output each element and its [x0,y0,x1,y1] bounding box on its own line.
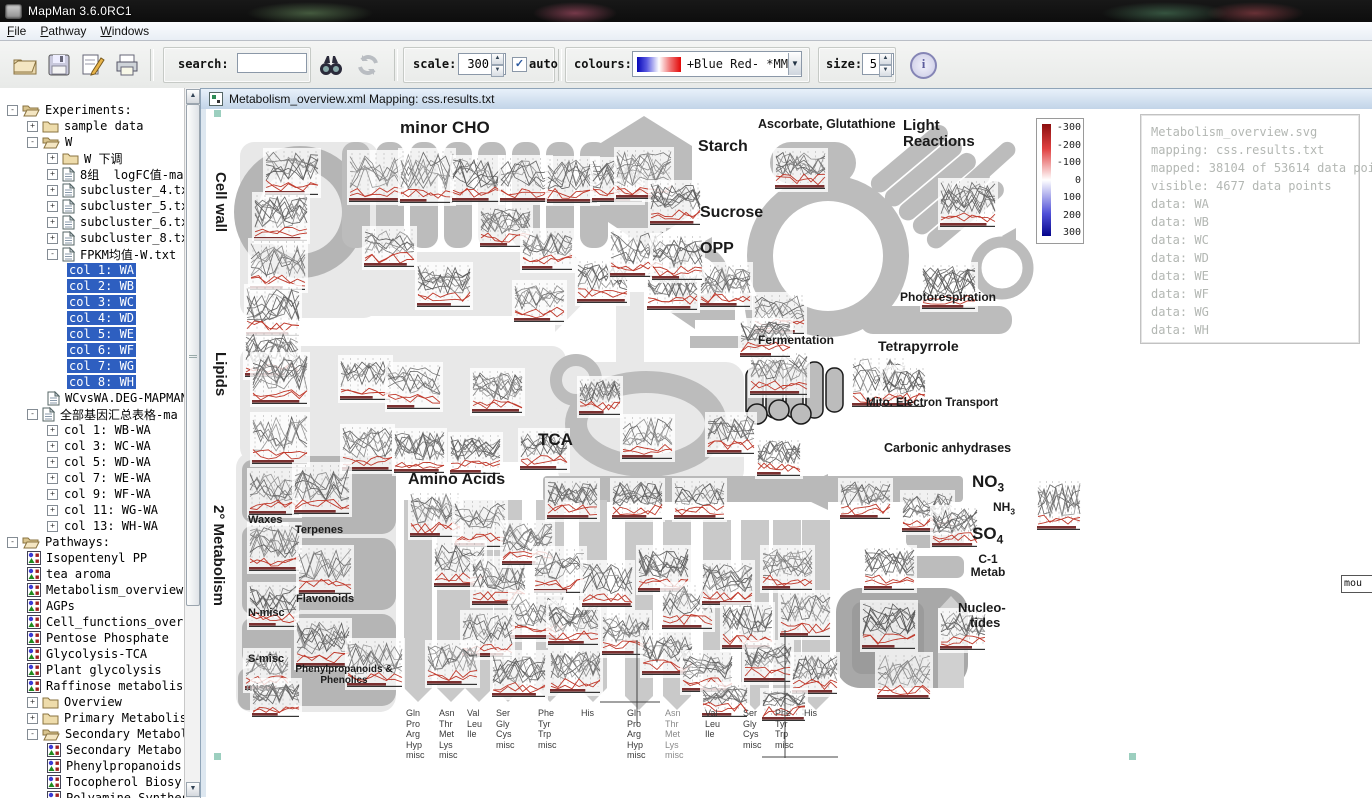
label-lipids: Lipids [212,352,229,396]
label-opp: OPP [700,240,734,258]
tree-item[interactable]: +col 3: WC-WA [0,438,184,454]
tree-item[interactable]: col 2: WB [0,278,184,294]
tree-item-label[interactable]: Polyamine Synthes [64,791,191,798]
tree-item-label[interactable]: subcluster_5.txt [78,199,198,213]
info-line: mapped: 38104 of 53614 data points [1151,159,1359,177]
folder-icon [62,151,79,165]
aa-label-synthesis-5: His [581,708,613,719]
tree-item-label[interactable]: col 3: WC-WA [62,439,153,453]
expression-profile-thumbnail[interactable] [490,650,548,700]
tree-item-label[interactable]: Plant glycolysis [44,663,164,677]
tree-item-label[interactable]: Pathways: [43,535,112,549]
folder-icon [42,119,59,133]
tree-item-label[interactable]: col 5: WE [67,327,136,341]
expand-icon[interactable]: + [27,121,38,132]
tree-item[interactable]: Cell_functions_over [0,614,184,630]
tree-item[interactable]: -Experiments: [0,102,184,118]
expression-profile-thumbnail[interactable] [580,560,635,610]
find-binoculars-button[interactable] [318,52,344,78]
tree-item-label[interactable]: sample data [62,119,145,133]
label-starch: Starch [698,138,748,156]
legend-tick: 300 [1054,227,1081,238]
tree-item[interactable]: +sample data [0,118,184,134]
info-line: visible: 4677 data points [1151,177,1359,195]
label-terpenes: Terpenes [295,524,343,536]
label-carbonic-anhydrases: Carbonic anhydrases [884,441,1011,455]
expression-profile-thumbnail[interactable] [838,478,893,522]
tree-item[interactable]: +col 1: WB-WA [0,422,184,438]
pathway-icon [27,679,41,693]
info-line: data: WA [1151,195,1359,213]
expression-profile-thumbnail[interactable] [425,640,480,688]
tree-item[interactable]: Tocopherol Biosy [0,774,184,790]
colour-scale-swatch [637,57,681,72]
expression-profile-thumbnail[interactable] [498,155,553,205]
tree-item-label[interactable]: subcluster_8.txt [78,231,198,245]
label-flavonoids: Flavonoids [296,593,354,605]
folder-icon [62,151,79,165]
tree-item[interactable]: +Overview [0,694,184,710]
label-amino-acids: Amino Acids [408,471,505,489]
tree-item[interactable]: AGPs [0,598,184,614]
titlebar: MapMan 3.6.0RC1 [0,0,1372,22]
collapse-icon[interactable]: - [27,409,38,420]
colour-scale-legend: -300-200-1000100200300 [1036,118,1084,244]
scroll-down-icon[interactable]: ▼ [186,782,200,797]
file-icon [62,247,75,262]
pathway-doc-icon [209,92,223,106]
doc-title: Metabolism_overview.xml Mapping: css.res… [229,92,494,106]
tree-item[interactable]: WCvsWA.DEG-MAPMAN.t [0,390,184,406]
tree-item[interactable]: Isopentenyl PP [0,550,184,566]
info-button[interactable] [910,52,937,79]
file-icon [62,167,75,182]
open-file-button[interactable] [12,52,38,78]
expression-profile-thumbnail[interactable] [250,352,310,407]
tree-item[interactable]: -W [0,134,184,150]
tree-item-label[interactable]: Phenylpropanoids [64,759,184,773]
folder-icon [42,119,59,133]
legend-tick: -200 [1054,140,1081,151]
label-phenylpropanoids: Phenylpropanoids & Phenolics [288,664,400,686]
expand-icon[interactable]: + [47,169,58,180]
tree-item[interactable]: +col 13: WH-WA [0,518,184,534]
tree-item-label[interactable]: col 7: WE-WA [62,471,153,485]
tree-item[interactable]: +col 5: WD-WA [0,454,184,470]
file-icon [62,167,75,182]
file-icon [62,247,75,262]
label-n-misc: N-misc [248,607,285,619]
scale-spinner-arrows[interactable] [491,53,504,75]
expand-icon[interactable]: + [27,713,38,724]
aa-label-synthesis-3: SerGlyCysmisc [496,708,528,750]
aa-label-synthesis-2: ValLeuIle [467,708,499,740]
folder-open-icon [42,727,60,741]
tree-item[interactable]: +col 11: WG-WA [0,502,184,518]
tree-item-label[interactable]: AGPs [44,599,77,613]
info-line: data: WG [1151,303,1359,321]
tree-item-label[interactable]: col 9: WF-WA [62,487,153,501]
aa-label-degradation-4: PheTyrTrpmisc [775,708,807,750]
tree-item[interactable]: col 4: WD [0,310,184,326]
expression-profile-thumbnail[interactable] [296,545,354,597]
size-spinner-arrows[interactable] [879,53,892,75]
chevron-down-icon[interactable] [788,53,801,75]
expand-icon[interactable]: + [47,521,58,532]
tree-item-label[interactable]: col 1: WB-WA [62,423,153,437]
tree-item[interactable]: +subcluster_8.txt [0,230,184,246]
file-icon [62,215,75,230]
tree-item-label[interactable]: subcluster_6.txt [78,215,198,229]
tree-item-label[interactable]: Metabolism_overview [44,583,185,597]
pathway-icon [47,791,61,798]
expression-profile-thumbnail[interactable] [362,226,417,270]
doc-titlebar[interactable]: Metabolism_overview.xml Mapping: css.res… [201,89,1372,110]
tree-item[interactable]: +subcluster_5.txt [0,198,184,214]
pathway-icon [27,663,41,677]
tree-item-label[interactable]: col 6: WF [67,343,136,357]
tree-item-label[interactable]: Secondary Metabo [64,743,184,757]
refresh-button[interactable] [355,52,381,78]
tree-item-label[interactable]: W 下调 [82,150,124,167]
expand-icon[interactable]: + [47,425,58,436]
tree-item[interactable]: Secondary Metabo [0,742,184,758]
tree-item-label[interactable]: col 13: WH-WA [62,519,160,533]
file-icon [62,199,75,214]
pathway-icon [47,775,61,789]
expression-profile-thumbnail[interactable] [778,590,833,640]
menubar: FilePathwayWindows [0,22,1372,41]
tree-item[interactable]: +col 9: WF-WA [0,486,184,502]
scroll-up-icon[interactable]: ▲ [186,89,200,104]
expand-icon[interactable]: + [47,505,58,516]
label-minor-cho: minor CHO [400,118,490,138]
edit-button[interactable] [80,52,106,78]
tree-item-label[interactable]: Experiments: [43,103,134,117]
expression-profile-thumbnail[interactable] [742,640,794,685]
tree-item-label[interactable]: col 8: WH [67,375,136,389]
pathway-icon [27,679,41,693]
expand-icon[interactable]: + [47,217,58,228]
tree-item-label[interactable]: W [63,135,74,149]
pathway-icon [27,583,41,597]
menu-item-windows[interactable]: Windows [93,23,156,39]
tree-scrollbar[interactable]: ▲ ▼ [184,88,200,798]
collapse-icon[interactable]: - [47,249,58,260]
collapse-icon[interactable]: - [27,137,38,148]
expression-profile-thumbnail[interactable] [292,462,352,517]
expression-profile-thumbnail[interactable] [250,412,310,467]
scale-label: scale: [413,57,456,71]
tree-item[interactable]: -Pathways: [0,534,184,550]
experiment-tree-panel: -Experiments:+sample data-W+W 下调+8组 logF… [0,88,200,798]
tree-item[interactable]: Polyamine Synthes [0,790,184,798]
tree-item-label[interactable]: col 2: WB [67,279,136,293]
info-line: mapping: css.results.txt [1151,141,1359,159]
pathway-icon [27,631,41,645]
expression-profile-thumbnail[interactable] [650,233,705,283]
tree-item[interactable]: col 8: WH [0,374,184,390]
expression-profile-thumbnail[interactable] [385,362,443,412]
expand-icon[interactable]: + [47,457,58,468]
pathway-icon [27,647,41,661]
pathway-icon [27,615,41,629]
tree-item-label[interactable]: 全部基因汇总表格-ma [58,406,180,423]
tree-item[interactable]: Plant glycolysis [0,662,184,678]
label-cell-wall: Cell wall [212,172,229,232]
label-waxes: Waxes [248,514,282,526]
aa-label-degradation-0: GlnProArgHypmisc [627,708,659,761]
expression-profile-thumbnail[interactable] [247,582,299,630]
aa-label-degradation-2: ValLeuIle [705,708,737,740]
file-icon [62,183,75,198]
expand-icon[interactable]: + [47,185,58,196]
colours-value: +Blue Red- *MM [687,57,788,71]
file-icon [62,231,75,246]
colours-dropdown[interactable]: +Blue Red- *MM [632,51,802,77]
aa-label-degradation-5: His [804,708,836,719]
label-c1-metab: C-1Metab [966,553,1010,579]
tree-item[interactable]: +W 下调 [0,150,184,166]
expression-profile-thumbnail[interactable] [773,148,828,192]
tree-item[interactable]: col 7: WG [0,358,184,374]
pathway-icon [47,759,61,773]
aa-label-synthesis-4: PheTyrTrpmisc [538,708,570,750]
folder-icon [42,711,59,725]
file-icon [42,407,55,422]
tree-item[interactable]: col 5: WE [0,326,184,342]
expression-profile-thumbnail[interactable] [294,618,352,670]
tree-item-label[interactable]: tea aroma [44,567,113,581]
label-photorespiration: Photorespiration [900,290,996,304]
expression-profile-thumbnail[interactable] [700,560,755,608]
tree-item-label[interactable]: Cell_functions_over [44,615,185,629]
menu-item-file[interactable]: File [0,23,33,39]
tree-item[interactable]: col 3: WC [0,294,184,310]
label-fermentation: Fermentation [758,333,834,347]
expression-profile-thumbnail[interactable] [755,437,803,479]
selection-handle[interactable] [1129,753,1136,760]
expression-profile-thumbnail[interactable] [577,376,623,418]
app-icon [5,4,22,19]
legend-tick: -300 [1054,122,1081,133]
tree-item[interactable]: +subcluster_6.txt [0,214,184,230]
file-icon [42,407,55,422]
tree-item-label[interactable]: col 1: WA [67,263,136,277]
folder-open-icon [42,727,60,741]
tree-item-label[interactable]: WCvsWA.DEG-MAPMAN.t [63,391,200,405]
save-button[interactable] [46,52,72,78]
tree-item[interactable]: Metabolism_overview [0,582,184,598]
folder-icon [42,711,59,725]
expression-profile-thumbnail[interactable] [860,600,918,652]
folder-open-icon [22,103,40,117]
toolbar: search: scale: 300 auto colours: +Blue R… [0,41,1372,89]
pathway-icon [27,551,41,565]
expression-profile-thumbnail[interactable] [532,546,587,596]
expression-profile-thumbnail[interactable] [705,412,757,457]
pathway-icon [27,567,41,581]
expression-profile-thumbnail[interactable] [862,545,917,593]
tree-item-label[interactable]: col 3: WC [67,295,136,309]
search-input[interactable] [237,53,307,73]
expression-profile-thumbnail[interactable] [263,148,321,198]
collapse-icon[interactable]: - [7,105,18,116]
tree-item[interactable]: -FPKM均值-W.txt [0,246,184,262]
expression-profile-thumbnail[interactable] [512,280,567,325]
pathway-icon [47,759,61,773]
tree-item-label[interactable]: Isopentenyl PP [44,551,149,565]
toolbar-separator [394,49,398,81]
mapping-info-panel: Metabolism_overview.svgmapping: css.resu… [1140,114,1360,344]
collapse-icon[interactable]: - [27,729,38,740]
aa-label-synthesis-0: GlnProArgHypmisc [406,708,438,761]
pathway-icon [27,567,41,581]
aa-label-degradation-3: SerGlyCysmisc [743,708,775,750]
expression-profile-thumbnail[interactable] [338,355,393,403]
file-icon [62,231,75,246]
expression-profile-thumbnail[interactable] [415,262,473,310]
tree-item-label[interactable]: Glycolysis-TCA [44,647,149,661]
expression-profile-thumbnail[interactable] [450,155,505,205]
tree-item-label[interactable]: subcluster_4.txt [78,183,198,197]
expand-icon[interactable]: + [47,153,58,164]
mouse-tooltip: mou [1341,575,1372,593]
legend-tick: 200 [1054,210,1081,221]
expand-icon[interactable]: + [47,473,58,484]
colours-label: colours: [574,57,632,71]
pathway-icon [47,775,61,789]
expression-profile-thumbnail[interactable] [392,428,447,476]
expand-icon[interactable]: + [47,489,58,500]
expression-profile-thumbnail[interactable] [252,192,310,244]
auto-checkbox[interactable] [512,57,527,72]
legend-ticks: -300-200-1000100200300 [1054,122,1081,238]
label-sucrose: Sucrose [700,204,763,222]
tree-item-label[interactable]: Secondary Metabolis [63,727,200,741]
legend-gradient-bar [1042,124,1051,236]
label-mito-electron-transport: Mito. Electron Transport [866,397,998,409]
info-line: data: WF [1151,285,1359,303]
label-tca: TCA [538,430,573,450]
label-sec-metabolism: 2° Metabolism [210,505,227,606]
expression-profile-thumbnail[interactable] [548,648,603,696]
label-tetrapyrrole: Tetrapyrrole [878,338,959,354]
app-title: MapMan 3.6.0RC1 [28,4,132,18]
expression-profile-thumbnail[interactable] [672,478,727,522]
pathway-icon [27,599,41,613]
tree-item[interactable]: col 6: WF [0,342,184,358]
expression-profile-thumbnail[interactable] [648,180,703,228]
folder-open-icon [22,103,40,117]
scrollbar-thumb[interactable] [186,104,200,606]
pathway-icon [47,791,61,798]
info-line: data: WB [1151,213,1359,231]
tree-item-label[interactable]: Tocopherol Biosy [64,775,184,789]
expression-profile-thumbnail[interactable] [938,178,998,230]
menu-item-pathway[interactable]: Pathway [33,23,93,39]
file-icon [47,391,60,406]
info-line: data: WH [1151,321,1359,339]
expression-profile-thumbnail[interactable] [698,262,753,310]
expression-profile-thumbnail[interactable] [620,414,675,462]
tree-item-label[interactable]: Primary Metabolism [62,711,196,725]
tree-item-label[interactable]: Pentose Phosphate [44,631,171,645]
search-label: search: [178,57,229,71]
label-ascorbate: Ascorbate, Glutathione [758,117,896,131]
tree-item-label[interactable]: Overview [62,695,124,709]
selection-handle[interactable] [214,110,221,117]
label-misc: misc [246,682,271,694]
tree-item-label[interactable]: 8组 logFC值-map [78,166,193,183]
pathway-icon [27,551,41,565]
tree-item-label[interactable]: FPKM均值-W.txt [78,246,178,263]
tree-item[interactable]: +subcluster_4.txt [0,182,184,198]
tree-item[interactable]: col 1: WA [0,262,184,278]
file-icon [62,215,75,230]
tree-item[interactable]: Glycolysis-TCA [0,646,184,662]
auto-label: auto [529,57,558,71]
expression-profile-thumbnail[interactable] [610,478,665,522]
selection-handle[interactable] [214,753,221,760]
tree-item-label[interactable]: col 5: WD-WA [62,455,153,469]
expression-profile-thumbnail[interactable] [545,478,600,522]
expression-profile-thumbnail[interactable] [760,545,815,593]
collapse-icon[interactable]: - [7,537,18,548]
expression-profile-thumbnail[interactable] [398,148,456,206]
label-nh3: NH3 [993,500,1015,516]
pathway-icon [47,743,61,757]
tree-item[interactable]: Phenylpropanoids [0,758,184,774]
print-button[interactable] [114,52,140,78]
mapman-window: MapMan 3.6.0RC1 FilePathwayWindows searc… [0,0,1372,798]
tree-item[interactable]: Raffinose metabolis [0,678,184,694]
expand-icon[interactable]: + [47,233,58,244]
expression-profile-thumbnail[interactable] [520,228,575,273]
pathway-icon [27,647,41,661]
tree-item[interactable]: +Primary Metabolism [0,710,184,726]
tree-item-label[interactable]: Raffinose metabolis [44,679,185,693]
tree-item[interactable]: tea aroma [0,566,184,582]
tree-item[interactable]: -Secondary Metabolis [0,726,184,742]
expand-icon[interactable]: + [27,697,38,708]
info-line: data: WE [1151,267,1359,285]
tree-item[interactable]: -全部基因汇总表格-ma [0,406,184,422]
tree-item-label[interactable]: col 11: WG-WA [62,503,160,517]
tree-item-label[interactable]: col 7: WG [67,359,136,373]
info-line: data: WC [1151,231,1359,249]
legend-tick: -100 [1054,157,1081,168]
expand-icon[interactable]: + [47,441,58,452]
tree-item[interactable]: +8组 logFC值-map [0,166,184,182]
folder-open-icon [42,135,60,149]
expand-icon[interactable]: + [47,201,58,212]
tree-item[interactable]: +col 7: WE-WA [0,470,184,486]
toolbar-separator [558,49,562,81]
expression-profile-thumbnail[interactable] [470,368,525,416]
expression-profile-thumbnail[interactable] [1035,478,1083,533]
expression-profile-thumbnail[interactable] [347,150,405,205]
aa-label-degradation-1: AsnThrMetLysmisc [665,708,697,761]
legend-tick: 100 [1054,192,1081,203]
tree-item-label[interactable]: col 4: WD [67,311,136,325]
tree-item[interactable]: Pentose Phosphate [0,630,184,646]
label-s-misc: S-misc [248,653,284,665]
expression-profile-thumbnail[interactable] [875,652,933,702]
expression-profile-thumbnail[interactable] [920,262,978,312]
label-no3: NO3 [972,472,1004,494]
expression-profile-thumbnail[interactable] [247,522,302,574]
